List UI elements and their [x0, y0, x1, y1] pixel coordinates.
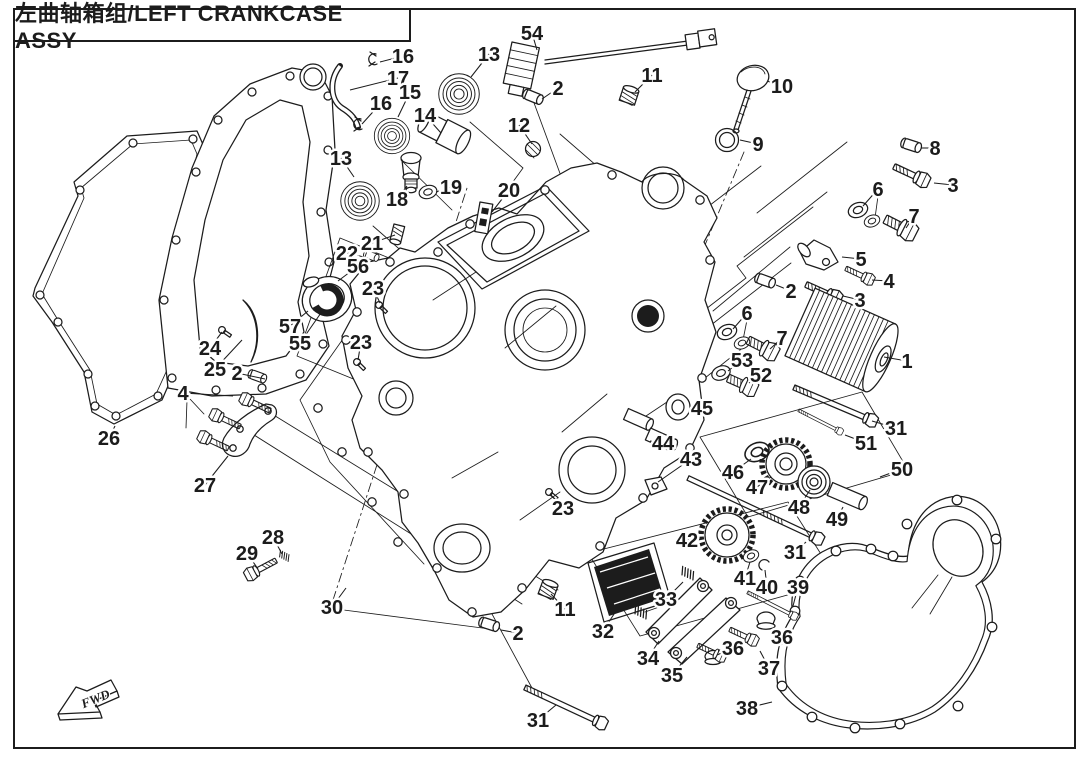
title-box: 左曲轴箱组/LEFT CRANKCASE ASSY [13, 8, 411, 42]
parts-diagram-page: 1617161513542141211109131819208367542367… [0, 0, 1090, 760]
page-title: 左曲轴箱组/LEFT CRANKCASE ASSY [15, 0, 409, 54]
diagram-border [13, 8, 1076, 749]
